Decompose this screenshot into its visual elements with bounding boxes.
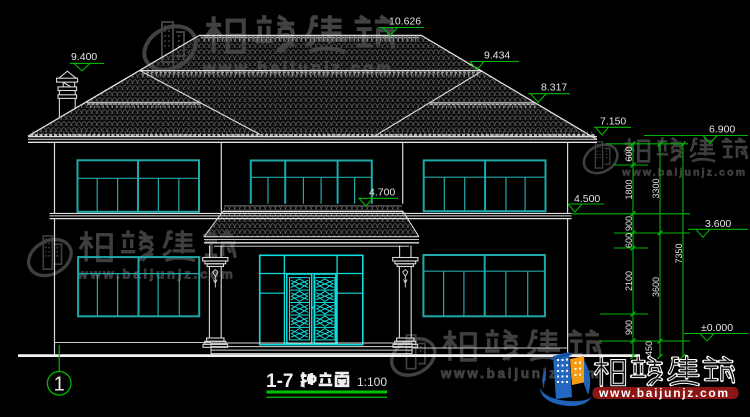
svg-text:www.baijunjz.com: www.baijunjz.com	[598, 386, 730, 400]
svg-text:10.626: 10.626	[389, 16, 421, 28]
svg-text:9.400: 9.400	[71, 51, 97, 63]
svg-text:600: 600	[624, 233, 634, 248]
svg-text:4.500: 4.500	[574, 193, 600, 205]
svg-text:7.150: 7.150	[600, 116, 626, 128]
svg-text:8.317: 8.317	[541, 82, 567, 94]
svg-text:9.434: 9.434	[484, 50, 510, 62]
svg-text:900: 900	[624, 320, 634, 335]
svg-text:3600: 3600	[651, 277, 661, 297]
svg-text:2100: 2100	[624, 271, 634, 291]
svg-text:3.600: 3.600	[705, 218, 731, 230]
svg-text:1800: 1800	[624, 179, 634, 199]
svg-text:1:100: 1:100	[357, 375, 387, 389]
svg-text:6.900: 6.900	[709, 124, 735, 136]
svg-text:±0.000: ±0.000	[701, 322, 733, 334]
svg-text:1: 1	[54, 374, 65, 396]
svg-text:900: 900	[624, 216, 634, 231]
svg-text:7350: 7350	[674, 243, 684, 263]
svg-text:450: 450	[644, 341, 654, 356]
svg-text:600: 600	[624, 146, 634, 161]
svg-text:1-7: 1-7	[266, 371, 293, 392]
svg-text:4.700: 4.700	[369, 187, 395, 199]
svg-text:3300: 3300	[651, 178, 661, 198]
